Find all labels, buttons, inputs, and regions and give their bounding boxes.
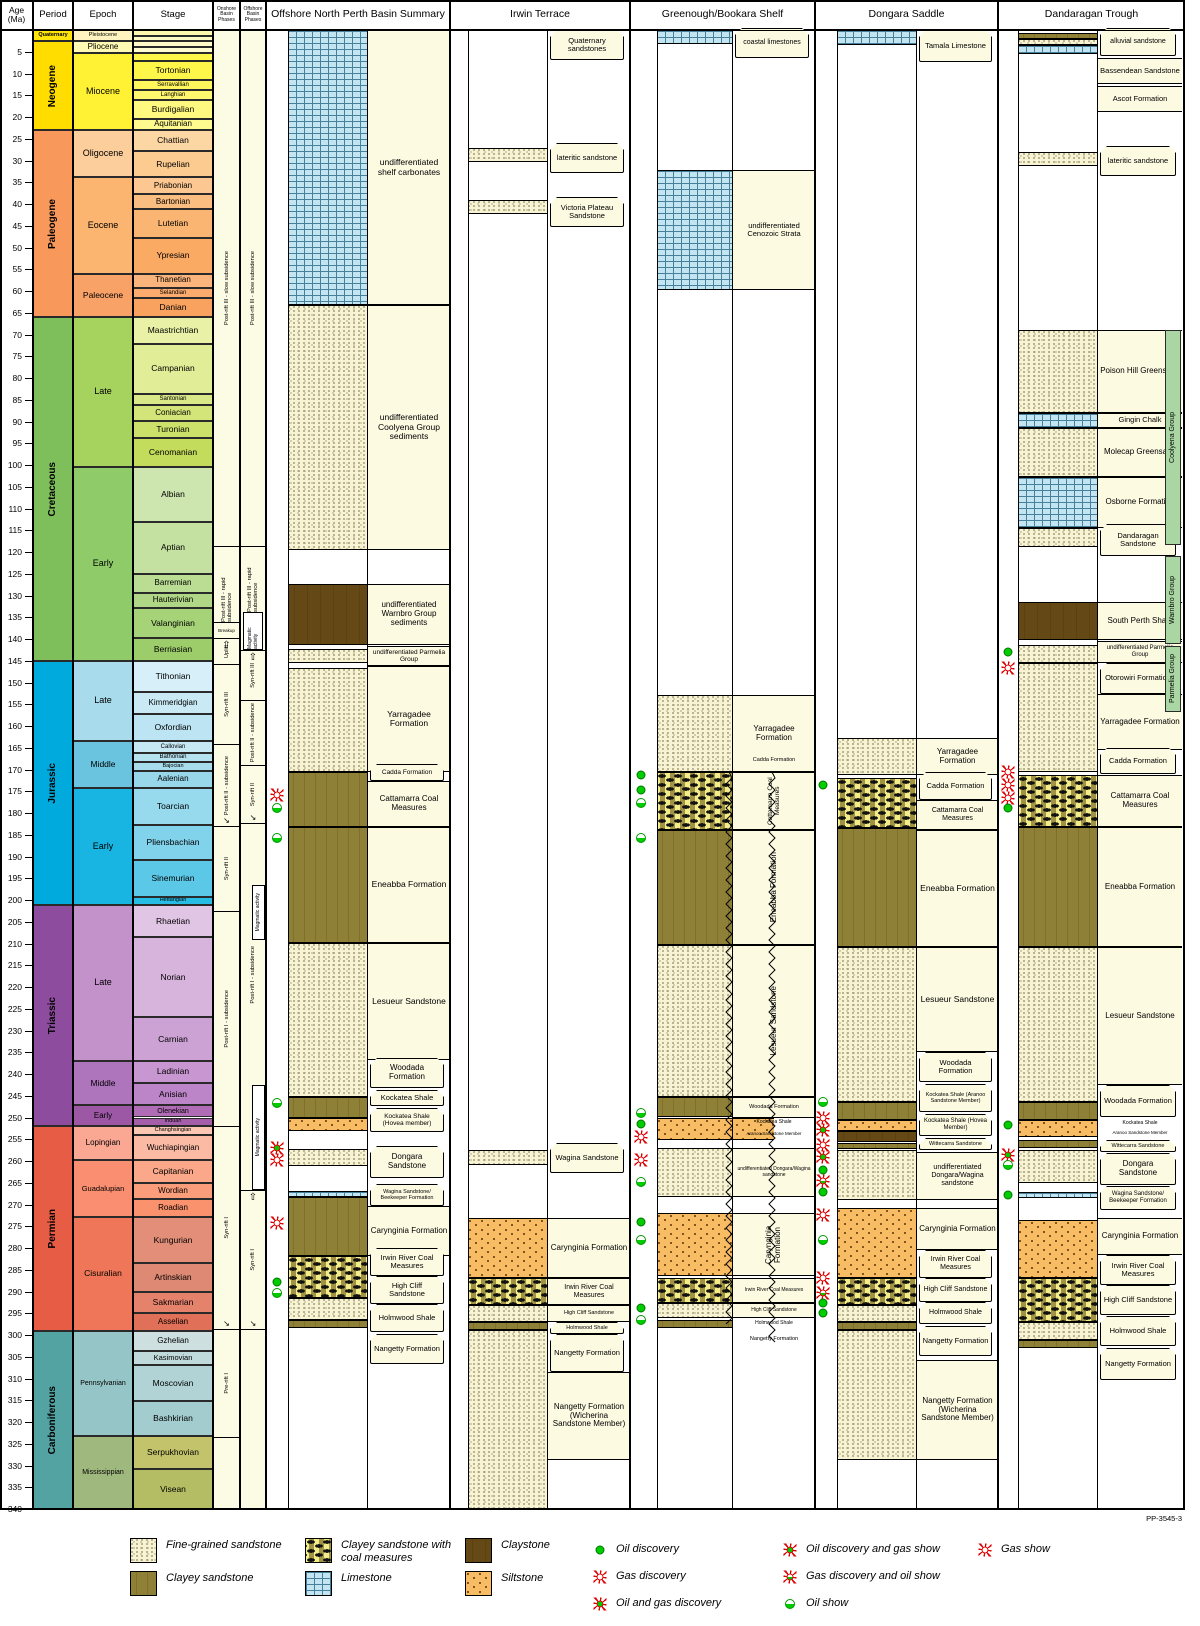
stratigraphic-correlation-chart: Age (Ma)PeriodEpochStageOnshore Basin Ph… (0, 0, 1200, 1510)
stage-cell: Tortonian (133, 61, 213, 80)
age-tick-mark (25, 74, 33, 75)
age-tick-label: 300 (2, 1330, 22, 1340)
group-strip-label: Coolyena Group (1165, 330, 1181, 545)
age-tick-label: 5 (2, 47, 22, 57)
gas-show-icon (1002, 779, 1015, 792)
stage-cell: Callovian (133, 741, 213, 752)
gas-show-icon (271, 789, 284, 802)
age-tick-label: 325 (2, 1439, 22, 1449)
oil-show-icon (636, 1177, 646, 1187)
period-label: Quaternary (38, 33, 67, 39)
formation-label: Yarragadee Formation (917, 738, 998, 775)
offshore-phase-item: Post-rift III - rapid subsidence (240, 546, 266, 612)
formation-label: Eneabba Formation (368, 827, 450, 943)
stage-cell: Barremian (133, 574, 213, 593)
legend-swatch-clst (465, 1538, 492, 1563)
formation-label-text: undifferentiated shelf carbonates (370, 158, 448, 177)
gas-show-icon (271, 1154, 284, 1167)
litho-block-coal (837, 1278, 917, 1305)
stage-cell: Gzhelian (133, 1331, 213, 1351)
stage-cell: Rhaetian (133, 905, 213, 937)
oil-show-icon (272, 833, 282, 843)
stage-cell: Roadian (133, 1199, 213, 1217)
age-tick-mark (25, 617, 33, 618)
litho-block-fs (837, 1330, 917, 1460)
stage-cell: Aquitanian (133, 119, 213, 130)
stage-cell: Lutetian (133, 209, 213, 238)
column-header: Offshore North Perth Basin Summary (266, 0, 450, 30)
age-tick-mark (25, 378, 33, 379)
rift-transition-arrow-icon: ↘ (250, 814, 257, 822)
age-tick-label: 145 (2, 656, 22, 666)
oil-discovery-icon (1004, 1191, 1013, 1200)
column-header: Irwin Terrace (450, 0, 630, 30)
litho-block-ls (837, 30, 917, 45)
formation-label-text: High Cliff Sandstone (751, 1308, 797, 1314)
oil-show-icon (636, 1108, 646, 1118)
formation-label: Dongara Sandstone (370, 1146, 444, 1178)
stage-cell: Rupelian (133, 151, 213, 178)
epoch-cell: Early (73, 1105, 133, 1126)
age-tick-label: 285 (2, 1265, 22, 1275)
formation-label: Cadda Formation (370, 764, 444, 781)
litho-block-cs (657, 830, 733, 945)
age-tick-mark (25, 683, 33, 684)
age-tick-mark (25, 248, 33, 249)
stage-cell: Olenekian (133, 1105, 213, 1117)
stage-cell: Induan (133, 1118, 213, 1127)
litho-block-fs (657, 1303, 733, 1318)
formation-label-text: Cattamarra Coal Measures (919, 807, 996, 822)
age-tick-mark (25, 1292, 33, 1293)
oil-discovery-icon (1004, 648, 1013, 657)
formation-label-text: Yarragadee Formation (370, 710, 448, 729)
age-tick-label: 50 (2, 243, 22, 253)
formation-label: Tamala Limestone (919, 30, 992, 62)
gas-discovery-icon (817, 1209, 830, 1222)
legend-swatch-fs (130, 1538, 157, 1563)
age-tick-mark (25, 552, 33, 553)
age-tick-mark (25, 1444, 33, 1445)
phase-label: Syn-rift I (250, 1249, 256, 1271)
age-tick-label: 180 (2, 808, 22, 818)
gas-discovery-icon (635, 1131, 648, 1144)
stage-cell: Bashkirian (133, 1401, 213, 1436)
gas-show-icon (271, 1217, 284, 1230)
litho-block-clst (288, 584, 368, 645)
formation-label: Cattamarra Coal Measures (733, 772, 815, 830)
age-tick-label: 190 (2, 852, 22, 862)
gas-discovery-icon (594, 1571, 607, 1584)
litho-block-slt (837, 1120, 917, 1131)
oil-discovery-icon (819, 1188, 828, 1197)
litho-block-fs (1018, 1150, 1098, 1183)
litho-block-cs (1018, 1340, 1098, 1348)
litho-block-fs (837, 947, 917, 1102)
gas-disc-oil-show-icon (784, 1571, 797, 1584)
litho-block-fs (1018, 663, 1098, 772)
oil-show-icon (636, 833, 646, 843)
formation-label: Kockatea Shale (733, 1118, 815, 1128)
formation-label: Nangetty Formation (Wicherina Sandstone … (548, 1372, 630, 1460)
formation-label: Carynginia Formation (1098, 1218, 1182, 1255)
age-tick-label: 170 (2, 765, 22, 775)
age-tick-mark (25, 269, 33, 270)
age-tick-label: 275 (2, 1221, 22, 1231)
offshore-phase-item: Magmatic activity (252, 1085, 265, 1190)
oil-show-icon (785, 1599, 795, 1609)
age-tick-mark (25, 944, 33, 945)
epoch-cell: Pleistocene (73, 30, 133, 41)
age-tick-mark (25, 335, 33, 336)
formation-label: undifferentiated Warnbro Group sediments (368, 584, 450, 645)
oil-show-icon (818, 1235, 828, 1245)
stage-cell: Kimmeridgian (133, 692, 213, 715)
formation-label: Quaternary sandstones (550, 30, 624, 60)
formation-label: Wagina Sandstone/ Beekeeper Formation (370, 1184, 444, 1206)
stage-cell: Anisian (133, 1083, 213, 1106)
phase-label: Syn-rift III (224, 692, 230, 717)
gas-show-icon (635, 1154, 648, 1167)
age-tick-mark (25, 1248, 33, 1249)
age-tick-mark (25, 1226, 33, 1227)
epoch-cell: Late (73, 661, 133, 741)
age-tick-label: 110 (2, 504, 22, 514)
formation-label: Woodada Formation (1100, 1085, 1176, 1117)
litho-block-ls (657, 170, 733, 290)
period-label: Triassic (48, 997, 59, 1034)
age-tick-mark (25, 748, 33, 749)
column-header: Onshore Basin Phases (213, 0, 240, 30)
onshore-phase-item (213, 1437, 240, 1510)
age-tick-label: 235 (2, 1047, 22, 1057)
legend-label: Gas discovery and oil show (806, 1570, 976, 1582)
period-label: Neogene (48, 65, 59, 107)
formation-label: Holmwood Shale (919, 1302, 992, 1324)
age-tick-mark (25, 661, 33, 662)
formation-label: Nangetty Formation (733, 1332, 815, 1346)
phase-label: Syn-rift III (250, 663, 256, 688)
litho-block-coal (657, 1278, 733, 1303)
stage-cell: Campanian (133, 344, 213, 394)
age-tick-mark (25, 1379, 33, 1380)
age-tick-label: 30 (2, 156, 22, 166)
stage-cell: Visean (133, 1469, 213, 1509)
oil-discovery-icon (819, 1299, 828, 1308)
stage-cell: Cenomanian (133, 438, 213, 467)
phase-label: Post-rift III - rapid subsidence (247, 547, 259, 612)
age-tick-label: 65 (2, 308, 22, 318)
age-tick-mark (25, 52, 33, 53)
stage-cell: Toarcian (133, 788, 213, 825)
formation-label: Cattamarra Coal Measures (368, 781, 450, 827)
stage-cell: Valanginian (133, 608, 213, 638)
offshore-phase-item: Post-rift III - slow subsidence (240, 30, 266, 546)
formation-label: lateritic sandstone (550, 143, 624, 173)
oil-discovery-icon (1004, 804, 1013, 813)
phase-label: Syn-rift II (250, 783, 256, 806)
onshore-phase-item: Syn-rift I↘ (213, 1126, 240, 1329)
period-label: Permian (48, 1209, 59, 1248)
formation-label: Nangetty Formation (1100, 1348, 1176, 1380)
formation-label: Nangetty Formation (550, 1334, 624, 1372)
age-tick-label: 335 (2, 1482, 22, 1492)
formation-label: lateritic sandstone (1100, 146, 1176, 176)
litho-block-fs (1018, 645, 1098, 663)
phase-label: Post-rift III - slow subsidence (250, 251, 256, 325)
oil-show-icon (272, 803, 282, 813)
age-tick-label: 245 (2, 1091, 22, 1101)
formation-label-text: Eneabba Formation (770, 852, 779, 922)
stage-cell: Danian (133, 298, 213, 317)
oil-show-icon (636, 798, 646, 808)
litho-block-slt (1018, 1120, 1098, 1137)
litho-block-fs (288, 1298, 368, 1320)
age-tick-label: 45 (2, 221, 22, 231)
formation-label: undifferentiated Dongara/Wagina sandston… (917, 1152, 998, 1200)
formation-label: Cattamarra Coal Measures (1098, 775, 1182, 827)
stage-cell: Maastrichtian (133, 317, 213, 344)
column-header: Dandaragan Trough (998, 0, 1185, 30)
formation-label: Cadda Formation (919, 772, 992, 800)
age-tick-mark (25, 1009, 33, 1010)
litho-block-fs (1018, 1322, 1098, 1340)
legend-label: Fine-grained sandstone (166, 1539, 296, 1552)
period-cell: Quaternary (33, 30, 73, 41)
epoch-cell: Mississippian (73, 1436, 133, 1510)
age-tick-mark (25, 117, 33, 118)
formation-label: Lesueur Sandstone (368, 943, 450, 1060)
column-header: Epoch (73, 0, 133, 30)
onshore-phase-item: Syn-rift III (213, 664, 240, 744)
formation-label-text: undifferentiated Dongara/Wagina sandston… (735, 1167, 813, 1178)
formation-label-text: undifferentiated Warnbro Group sediments (370, 601, 448, 627)
age-tick-mark (25, 161, 33, 162)
age-tick-label: 105 (2, 482, 22, 492)
onshore-phase-item: Uplift⇧ (213, 638, 240, 664)
age-tick-mark (25, 1357, 33, 1358)
legend-label: Limestone (341, 1572, 471, 1585)
age-tick-label: 185 (2, 830, 22, 840)
offshore-phase-item: Post-rift II - subsidence (240, 700, 266, 765)
age-tick-mark (25, 204, 33, 205)
litho-block-cs (288, 827, 368, 943)
stage-cell: Selandian (133, 288, 213, 298)
age-tick-label: 15 (2, 90, 22, 100)
stage-cell: Priabonian (133, 177, 213, 194)
epoch-cell: Guadalupian (73, 1160, 133, 1217)
litho-block-cs (468, 1322, 548, 1330)
formation-label-text: Carynginia Formation (371, 1227, 447, 1236)
oil-discovery-icon (596, 1546, 605, 1555)
stage-cell: Bartonian (133, 194, 213, 209)
formation-label: Cadda Formation (1100, 748, 1176, 774)
epoch-cell: Early (73, 467, 133, 661)
legend-swatch-ls (305, 1571, 332, 1596)
oil-discovery-icon (273, 1278, 282, 1287)
formation-label-text: undifferentiated Dongara/Wagina sandston… (919, 1164, 996, 1187)
age-tick-mark (25, 1466, 33, 1467)
formation-label: Wittecarra Sandstone (919, 1138, 992, 1150)
litho-block-cs (657, 1320, 733, 1328)
formation-label: Wagina Sandstone (550, 1143, 624, 1173)
formation-label: undifferentiated shelf carbonates (368, 30, 450, 305)
formation-label: Woodada Formation (733, 1097, 815, 1118)
formation-label: alluvial sandstone (1100, 28, 1176, 56)
onshore-phase-item: Pre-rift I (213, 1329, 240, 1437)
formation-label: coastal limestones (735, 28, 809, 58)
epoch-cell: Lopingian (73, 1126, 133, 1160)
oil-show-icon (1003, 1160, 1013, 1170)
formation-label-text: Eneabba Formation (1105, 883, 1175, 892)
age-tick-label: 175 (2, 786, 22, 796)
formation-label: Victoria Plateau Sandstone (550, 197, 624, 227)
phase-label: Syn-rift I (224, 1217, 230, 1239)
period-label: Carboniferous (48, 1386, 59, 1454)
oil-discovery-icon (637, 1218, 646, 1227)
formation-label: undifferentiated Coolyena Group sediment… (368, 305, 450, 550)
group-name: Parmelia Group (1169, 654, 1176, 703)
litho-block-clst (1018, 602, 1098, 640)
litho-block-coal (1018, 1278, 1098, 1322)
age-tick-mark (25, 835, 33, 836)
litho-block-clst (837, 1131, 917, 1142)
formation-label: Holmwood Shale (733, 1318, 815, 1330)
formation-label: Irwin River Coal Measures (370, 1248, 444, 1276)
age-tick-mark (25, 95, 33, 96)
stage-cell: Wordian (133, 1183, 213, 1199)
litho-block-cs (1018, 1102, 1098, 1120)
litho-block-fs (468, 148, 548, 162)
litho-block-cs (837, 828, 917, 947)
age-tick-label: 260 (2, 1156, 22, 1166)
oil-discovery-icon (819, 781, 828, 790)
offshore-phase-item: Syn-rift III⇧ (240, 650, 266, 700)
age-tick-mark (25, 509, 33, 510)
formation-label-text: Eneabba Formation (920, 884, 995, 893)
formation-label: Carynginia Formation (548, 1218, 630, 1278)
litho-block-cs (837, 1143, 917, 1149)
age-tick-mark (25, 770, 33, 771)
formation-label: Dongara Sandstone (1100, 1153, 1176, 1185)
epoch-cell: Late (73, 905, 133, 1061)
uplift-arrow-icon: ⇧ (249, 653, 257, 663)
age-tick-label: 265 (2, 1178, 22, 1188)
age-tick-label: 255 (2, 1134, 22, 1144)
age-tick-label: 220 (2, 982, 22, 992)
age-tick-mark (25, 1313, 33, 1314)
stage-cell: Carnian (133, 1017, 213, 1061)
phase-label: Post-rift I - subsidence (250, 946, 256, 1004)
age-tick-mark (25, 291, 33, 292)
stage-cell (133, 53, 213, 61)
formation-label-text: Cattamarra Coal Measures (767, 773, 781, 829)
phase-label: Magmatic activity (255, 1118, 261, 1156)
stage-cell: Pliensbachian (133, 825, 213, 860)
age-tick-mark (25, 1487, 33, 1488)
stage-cell: Serravallian (133, 80, 213, 90)
phase-label: Post-rift III - slow subsidence (224, 251, 230, 325)
stage-cell: Albian (133, 467, 213, 521)
phase-label: Post-rift I - subsidence (224, 990, 230, 1048)
legend-label: Gas discovery (616, 1570, 786, 1582)
stratigraphic-chart-page: Age (Ma)PeriodEpochStageOnshore Basin Ph… (0, 0, 1200, 1626)
age-tick-mark (25, 530, 33, 531)
age-tick-label: 25 (2, 134, 22, 144)
age-tick-mark (25, 356, 33, 357)
formation-label: Nangetty Formation (919, 1326, 992, 1356)
legend-swatch-coal (305, 1538, 332, 1563)
gas-show-icon (1002, 662, 1015, 675)
rift-transition-arrow-icon: ↘ (250, 1320, 257, 1328)
formation-label: undifferentiated Dongara/Wagina sandston… (733, 1148, 815, 1197)
oil-show-icon (636, 1235, 646, 1245)
formation-label-text: Irwin River Coal Measures (745, 1288, 804, 1294)
group-name: Warnbro Group (1169, 576, 1176, 624)
formation-label-text: High Cliff Sandstone (564, 1310, 614, 1316)
period-cell: Carboniferous (33, 1331, 73, 1510)
column-header: Offshore Basin Phases (240, 0, 266, 30)
litho-block-fs (657, 695, 733, 772)
formation-label: Yarragadee Formation (368, 666, 450, 772)
stage-cell: Sakmarian (133, 1292, 213, 1313)
age-tick-mark (25, 226, 33, 227)
stage-cell: Coniacian (133, 405, 213, 420)
age-tick-label: 320 (2, 1417, 22, 1427)
column-header: Age (Ma) (0, 0, 33, 30)
oil-gas-discovery-icon (817, 1124, 830, 1137)
litho-block-fs (468, 200, 548, 214)
epoch-cell: Miocene (73, 53, 133, 130)
formation-label-text: Ascot Formation (1113, 95, 1168, 103)
stage-cell: Asselian (133, 1313, 213, 1330)
formation-label-text: Yarragadee Formation (735, 725, 813, 743)
oil-show-icon (818, 1097, 828, 1107)
formation-label: Woodada Formation (919, 1052, 992, 1082)
stage-cell: Serpukhovian (133, 1436, 213, 1469)
onshore-phase-item: Post-rift III - rapid subsidence (213, 546, 240, 622)
stage-cell: Wuchiapingian (133, 1135, 213, 1160)
legend-label: Gas show (1001, 1543, 1171, 1555)
epoch-cell: Eocene (73, 177, 133, 273)
age-tick-label: 280 (2, 1243, 22, 1253)
age-tick-mark (25, 1096, 33, 1097)
epoch-cell: Pennsylvanian (73, 1331, 133, 1436)
age-tick-label: 270 (2, 1200, 22, 1210)
age-tick-mark (25, 1183, 33, 1184)
litho-block-fs (288, 649, 368, 663)
epoch-cell: Paleocene (73, 274, 133, 318)
litho-block-fs (468, 1330, 548, 1510)
formation-label: Eneabba Formation (733, 830, 815, 945)
litho-block-fs (1018, 330, 1098, 413)
oil-discovery-icon (1004, 1121, 1013, 1130)
age-tick-label: 315 (2, 1395, 22, 1405)
legend-swatch-slt (465, 1571, 492, 1596)
epoch-cell: Middle (73, 741, 133, 788)
age-tick-mark (25, 400, 33, 401)
formation-label: Carynginia Formation (733, 1213, 815, 1276)
oil-show-icon (636, 1315, 646, 1325)
period-label: Cretaceous (48, 462, 59, 516)
litho-block-ls (1018, 477, 1098, 528)
age-tick-mark (25, 1400, 33, 1401)
onshore-phase-item: Post-rift I - subsidence (213, 911, 240, 1126)
litho-block-cs (657, 1097, 733, 1117)
formation-label-text: Yarragadee Formation (1100, 718, 1179, 727)
litho-block-ls (288, 30, 368, 305)
epoch-cell: Cisuralian (73, 1217, 133, 1331)
